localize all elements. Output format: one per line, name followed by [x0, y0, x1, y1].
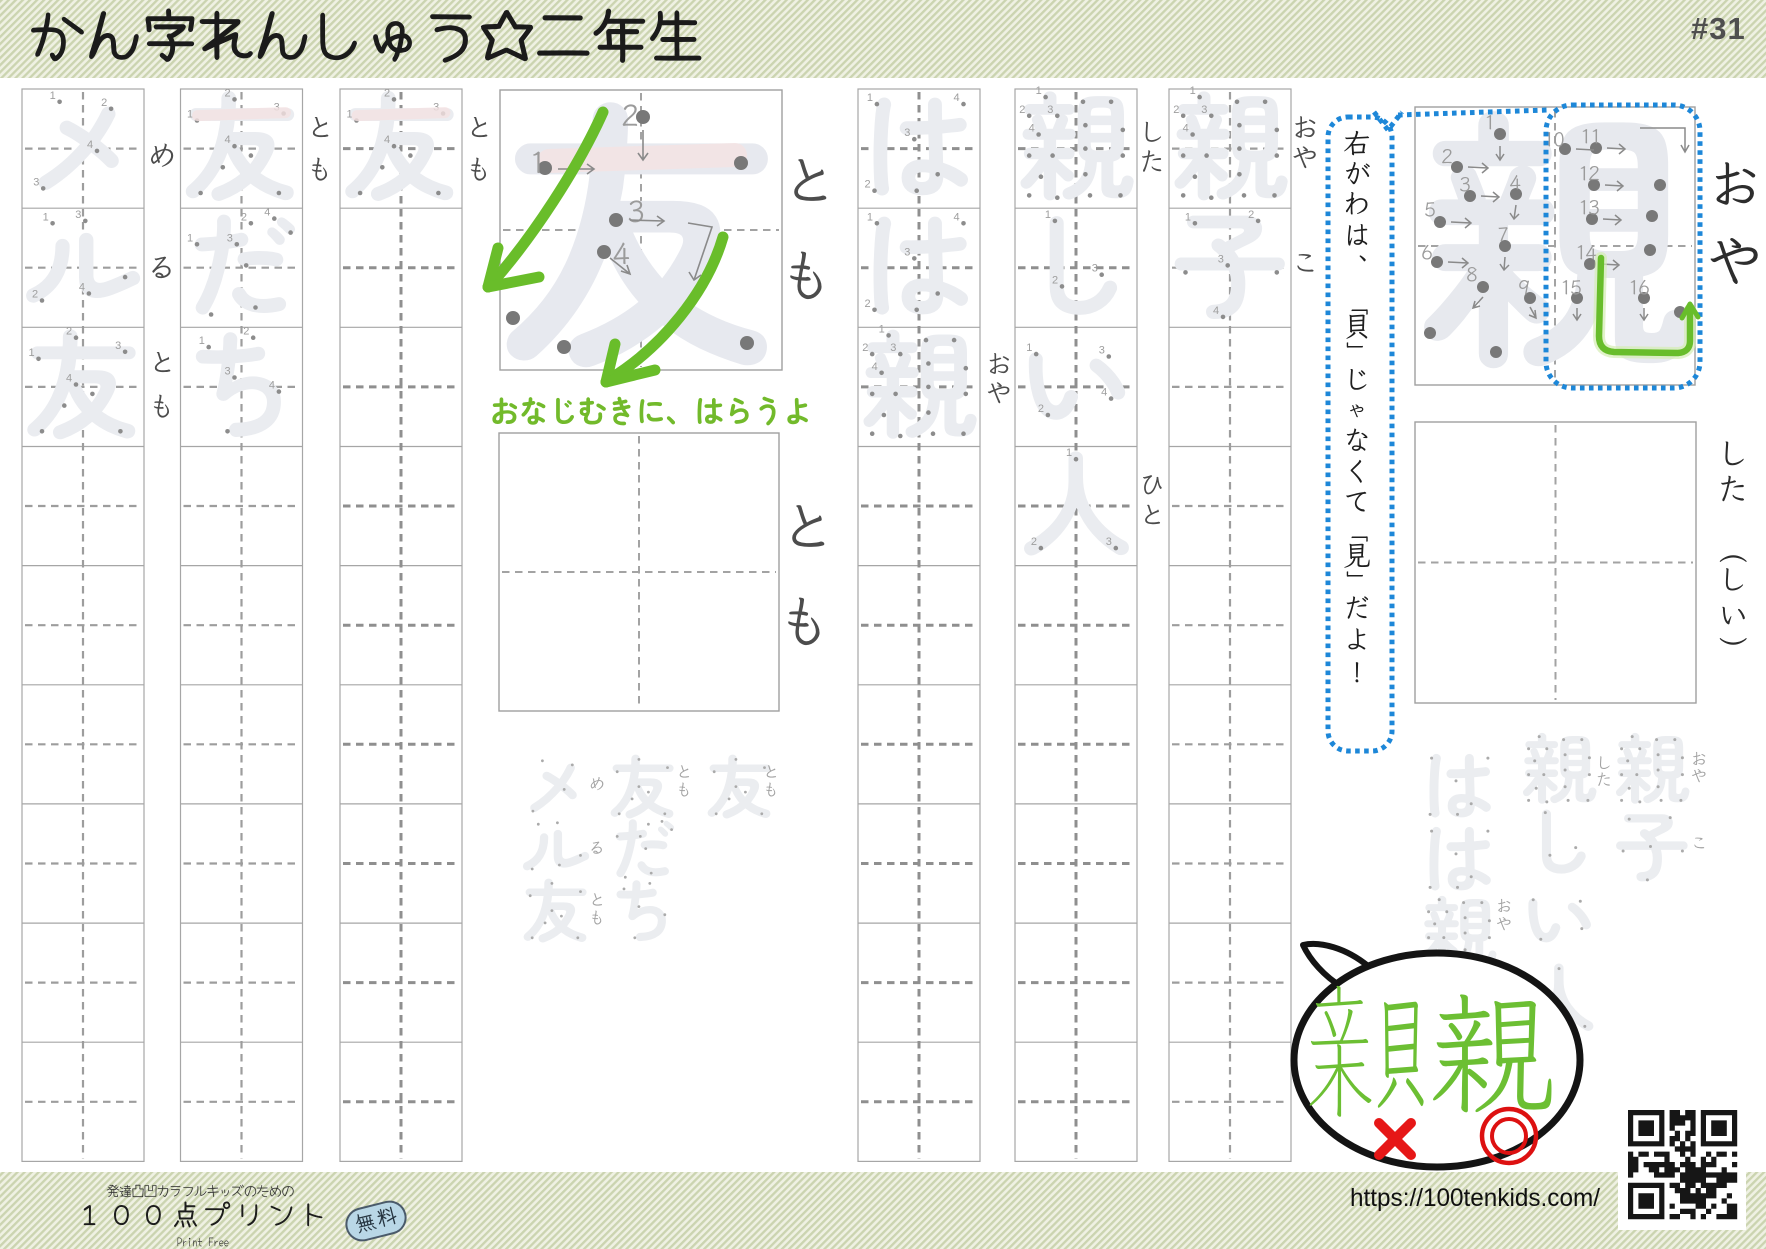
- svg-text:2: 2: [1038, 403, 1044, 415]
- svg-text:2: 2: [865, 298, 871, 310]
- svg-text:3: 3: [227, 232, 233, 244]
- svg-text:3: 3: [115, 340, 121, 352]
- svg-text:4: 4: [225, 134, 231, 146]
- svg-text:4: 4: [79, 282, 85, 294]
- svg-text:1: 1: [50, 90, 56, 102]
- svg-text:1: 1: [199, 335, 205, 347]
- svg-text:4: 4: [954, 92, 960, 104]
- svg-text:4: 4: [384, 134, 390, 146]
- svg-text:3: 3: [1201, 104, 1207, 116]
- svg-text:4: 4: [1183, 123, 1189, 135]
- svg-text:3: 3: [33, 176, 39, 188]
- svg-text:2: 2: [862, 342, 868, 354]
- svg-text:2: 2: [241, 211, 247, 223]
- svg-text:3: 3: [225, 366, 231, 378]
- svg-text:3: 3: [1092, 263, 1098, 275]
- svg-text:1: 1: [187, 232, 193, 244]
- svg-text:1: 1: [43, 211, 49, 223]
- svg-text:3: 3: [904, 127, 910, 139]
- svg-text:1: 1: [1026, 342, 1032, 354]
- svg-text:3: 3: [1218, 253, 1224, 265]
- svg-text:https://100tenkids.com/: https://100tenkids.com/: [1350, 1184, 1600, 1212]
- svg-text:3: 3: [1047, 104, 1053, 116]
- svg-text:2: 2: [1248, 209, 1254, 221]
- svg-text:3: 3: [904, 246, 910, 258]
- svg-text:4: 4: [87, 139, 93, 151]
- svg-text:2: 2: [32, 289, 38, 301]
- svg-text:1: 1: [1185, 211, 1191, 223]
- svg-text:2: 2: [1031, 536, 1037, 548]
- svg-text:4: 4: [872, 361, 878, 373]
- svg-text:3: 3: [890, 342, 896, 354]
- svg-text:1: 1: [1190, 85, 1196, 97]
- svg-text:4: 4: [954, 211, 960, 223]
- svg-text:4: 4: [1101, 387, 1107, 399]
- svg-text:4: 4: [1029, 123, 1035, 135]
- svg-text:2: 2: [101, 97, 107, 109]
- svg-text:4: 4: [66, 373, 72, 385]
- svg-text:3: 3: [75, 209, 81, 221]
- svg-text:1: 1: [867, 211, 873, 223]
- svg-text:2: 2: [1052, 274, 1058, 286]
- svg-text:3: 3: [1106, 536, 1112, 548]
- svg-text:1: 1: [29, 347, 35, 359]
- svg-text:1: 1: [1036, 85, 1042, 97]
- svg-text:1: 1: [879, 323, 885, 335]
- svg-text:4: 4: [1213, 305, 1219, 317]
- svg-text:1: 1: [1066, 447, 1072, 459]
- svg-text:2: 2: [1173, 104, 1179, 116]
- svg-text:2: 2: [384, 87, 390, 99]
- svg-text:4: 4: [269, 380, 275, 392]
- svg-text:4: 4: [264, 207, 270, 219]
- svg-text:2: 2: [225, 87, 231, 99]
- svg-text:2: 2: [865, 179, 871, 191]
- svg-text:2: 2: [243, 326, 249, 338]
- svg-text:#31: #31: [1691, 11, 1746, 46]
- svg-text:1: 1: [1045, 209, 1051, 221]
- svg-text:3: 3: [1099, 345, 1105, 357]
- svg-text:2: 2: [66, 326, 72, 338]
- svg-text:2: 2: [1019, 104, 1025, 116]
- svg-text:1: 1: [867, 92, 873, 104]
